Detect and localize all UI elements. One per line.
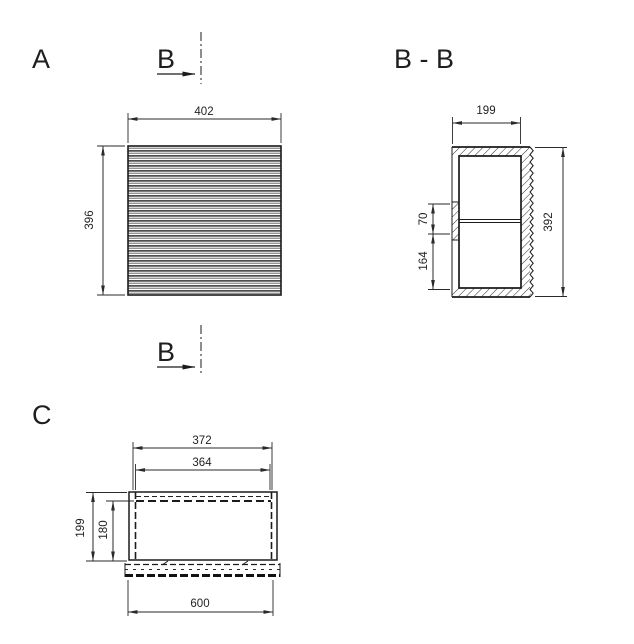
dim-text-392: 392 — [543, 212, 555, 231]
dimension-rail-bottom-164: 164 — [418, 234, 450, 290]
dim-text-402: 402 — [194, 106, 213, 118]
dim-text-600: 600 — [190, 598, 209, 610]
right-wall-hatch — [521, 156, 530, 288]
view-c-label: C — [32, 400, 52, 430]
dim-text-372: 372 — [192, 435, 211, 447]
top-wall-hatch — [452, 147, 531, 156]
dimension-height-396: 396 — [84, 146, 125, 295]
technical-drawing-page: A 402 396 B B B - B — [0, 0, 634, 644]
bottom-wall-hatch — [452, 288, 531, 297]
section-marker-top-label: B — [157, 44, 175, 74]
front-rail-band — [125, 563, 280, 577]
ribbed-edge-zigzag — [530, 147, 533, 297]
dim-text-70: 70 — [418, 213, 430, 226]
shelf-lines — [459, 220, 521, 223]
front-view: A 402 396 — [32, 44, 281, 295]
rail-block-hatch — [452, 202, 459, 240]
section-marker-top: B — [157, 32, 201, 84]
dimension-rail-70: 70 — [418, 204, 450, 234]
section-marker-bottom-label: B — [157, 337, 175, 367]
ribbed-front-panel — [128, 146, 281, 295]
dimension-width-402: 402 — [128, 106, 281, 143]
dimension-inner-364: 364 — [136, 457, 271, 490]
dim-text-180: 180 — [98, 520, 110, 539]
dim-text-396: 396 — [84, 210, 96, 229]
section-marker-bottom: B — [157, 325, 201, 376]
view-bb-label: B - B — [394, 44, 454, 74]
dim-text-364: 364 — [192, 457, 212, 469]
extension-lines — [428, 204, 450, 234]
extension-lines — [97, 146, 125, 295]
dim-text-199: 199 — [476, 105, 495, 117]
dim-text-164: 164 — [418, 251, 430, 271]
extension-lines — [453, 117, 521, 144]
bottom-view: C 372 364 199 — [32, 400, 280, 616]
dimension-overall-600: 600 — [128, 580, 273, 616]
dimension-height-392: 392 — [535, 148, 567, 297]
drawing-canvas: A 402 396 B B B - B — [0, 0, 634, 644]
section-view: B - B 199 70 164 — [394, 44, 567, 297]
carcass-outline — [129, 492, 277, 560]
dim-text-199-depth: 199 — [75, 518, 87, 537]
dimension-width-199: 199 — [453, 105, 521, 144]
view-a-label: A — [32, 44, 50, 74]
